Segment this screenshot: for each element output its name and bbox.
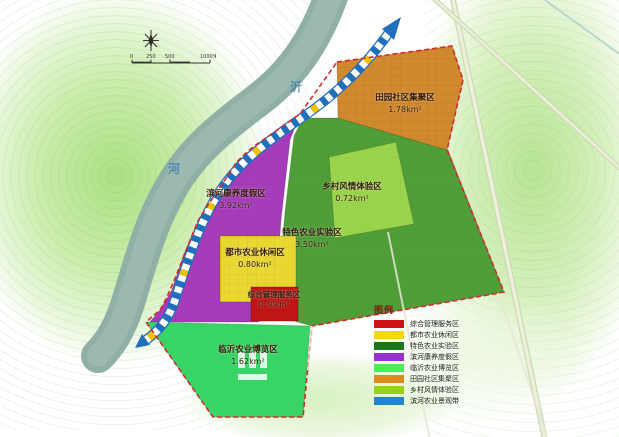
legend-label: 滨河康养度假区 [410,352,459,362]
legend-swatch [374,353,404,361]
legend-swatch [374,320,404,328]
legend-item: 滨河农业景观带 [374,396,484,405]
zone-label-dushi: 都市农业休闲区 0.80km² [212,248,298,270]
legend-item: 都市农业休闲区 [374,330,484,339]
legend-item: 田园社区集聚区 [374,374,484,383]
legend-item: 临沂农业博览区 [374,363,484,372]
legend: 图例 综合管理服务区 都市农业休闲区 特色农业实验区 滨河康养度假区 临沂农业博… [374,303,484,407]
svg-text:500: 500 [165,54,175,60]
north-arrow-icon [140,28,162,54]
legend-label: 综合管理服务区 [410,319,459,329]
legend-item: 特色农业实验区 [374,341,484,350]
legend-swatch [374,397,404,405]
zone-label-tese: 特色农业实验区 3.50km² [262,228,362,250]
zone-label-zonghe: 综合管理服务区 0.30km² [228,290,320,310]
zone-label-linyi: 临沂农业博览区 1.62km² [198,345,298,367]
legend-label: 特色农业实验区 [410,341,459,351]
legend-label: 田园社区集聚区 [410,374,459,384]
legend-label: 临沂农业博览区 [410,363,459,373]
river-name-char-1: 沂 [290,78,302,95]
zone-label-xiangcun: 乡村风情体验区 0.72km² [302,182,402,204]
svg-text:0: 0 [130,54,133,60]
legend-swatch [374,386,404,394]
legend-label: 都市农业休闲区 [410,330,459,340]
legend-title: 图例 [374,303,484,316]
legend-item: 乡村风情体验区 [374,385,484,394]
planning-map: 0 250 500 1000米 沂 河 田园社区集聚区 1.78km² 滨河康养… [0,0,619,437]
river-name-char-2: 河 [168,160,180,177]
legend-swatch [374,364,404,372]
svg-text:250: 250 [146,54,156,60]
zone-label-tianyuan: 田园社区集聚区 1.78km² [352,93,458,115]
legend-item: 滨河康养度假区 [374,352,484,361]
zone-label-binhe: 滨河康养度假区 3.92km² [188,189,284,211]
legend-swatch [374,331,404,339]
legend-label: 乡村风情体验区 [410,385,459,395]
stream [538,0,619,58]
zone-linyi-bolan [146,322,310,417]
scale-bar: 0 250 500 1000米 [130,52,216,68]
legend-label: 滨河农业景观带 [410,396,459,406]
legend-swatch [374,342,404,350]
svg-text:1000米: 1000米 [200,53,216,60]
legend-item: 综合管理服务区 [374,319,484,328]
legend-swatch [374,375,404,383]
map-canvas [0,0,619,437]
